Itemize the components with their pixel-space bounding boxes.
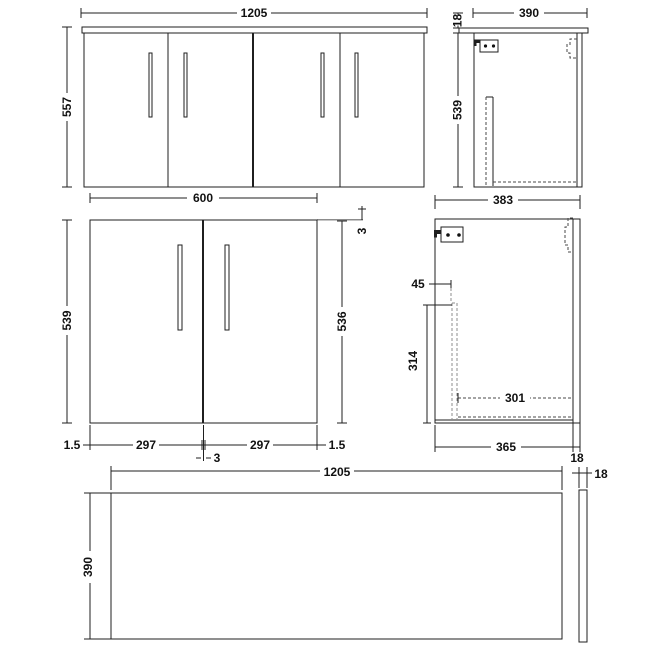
dim-label-cabinet-width: 600 — [193, 191, 213, 205]
bracket-screw-hole — [457, 233, 461, 237]
dim-label-right-margin: 1.5 — [329, 438, 346, 452]
worktop-edge-profile — [579, 490, 587, 642]
door-handle — [178, 245, 182, 330]
door-handle — [225, 245, 229, 330]
dim-label-overall-height: 557 — [60, 97, 74, 117]
dim-overall-height: 557 — [60, 27, 74, 187]
plan-view-worktop: 1205 390 18 — [81, 464, 608, 642]
door-handle — [149, 53, 152, 117]
dim-label-worktop-thickness: 18 — [594, 467, 608, 481]
dim-label-cabinet-height: 539 — [451, 100, 465, 120]
bracket-screw-hole — [492, 44, 495, 47]
technical-drawing-vanity-unit: 1205 557 390 — [0, 0, 650, 650]
dim-label-door-thickness: 18 — [570, 451, 584, 465]
dim-label-worktop-depth: 390 — [81, 557, 95, 577]
front-view-full-unit: 1205 557 — [60, 6, 427, 187]
dim-worktop-width: 1205 — [111, 464, 562, 490]
dim-label-shelf-depth: 301 — [505, 391, 525, 405]
dim-label-door-width-left: 297 — [136, 438, 156, 452]
dim-cabinet-width: 600 — [90, 191, 317, 205]
dim-depth: 390 — [473, 6, 587, 20]
dim-label-carcass-depth: 365 — [496, 440, 516, 454]
dim-label-depth-total: 383 — [493, 193, 513, 207]
dim-cabinet-height: 539 — [451, 33, 465, 187]
dim-label-depth: 390 — [519, 6, 539, 20]
side-view-with-worktop: 390 18 539 — [451, 6, 589, 187]
dim-label-left-margin: 1.5 — [64, 438, 81, 452]
dim-label-back-panel-height: 314 — [406, 351, 420, 371]
front-view-single-cabinet: 600 539 536 3 — [60, 191, 369, 465]
dim-worktop-thickness: 18 — [451, 13, 465, 28]
dim-door-height-right: 536 — [335, 221, 349, 423]
dim-label-top-gap: 3 — [355, 227, 369, 234]
dim-overall-width: 1205 — [81, 6, 427, 20]
side-view-cabinet-interior: 383 45 314 — [406, 193, 584, 465]
worktop-plan — [111, 493, 562, 639]
worktop-front — [82, 27, 427, 33]
dim-label-cabinet-height: 539 — [60, 310, 74, 330]
dim-worktop-depth: 390 — [81, 493, 111, 639]
cabinet-side-body — [474, 33, 582, 187]
dim-label-worktop-thickness: 18 — [451, 14, 465, 28]
dim-label-overall-width: 1205 — [241, 6, 268, 20]
door-handle — [355, 53, 358, 117]
door-handle — [184, 53, 187, 117]
dim-bottom-row: 365 18 — [435, 423, 584, 465]
dim-label-back-panel-offset: 45 — [411, 277, 425, 291]
worktop-side — [459, 28, 588, 33]
dim-label-door-height: 536 — [335, 311, 349, 331]
dim-label-door-width-right: 297 — [250, 438, 270, 452]
dim-label-center-gap: 3 — [214, 451, 221, 465]
dim-bottom-row: 1.5 297 297 1.5 3 — [64, 425, 346, 465]
dim-cabinet-height-left: 539 — [60, 220, 74, 423]
dim-depth-total: 383 — [435, 193, 580, 209]
dim-label-worktop-width: 1205 — [324, 465, 351, 479]
dim-worktop-thickness: 18 — [572, 467, 608, 488]
bracket-screw-hole — [446, 233, 450, 237]
door-handle — [321, 53, 324, 117]
bracket-screw-hole — [484, 44, 487, 47]
